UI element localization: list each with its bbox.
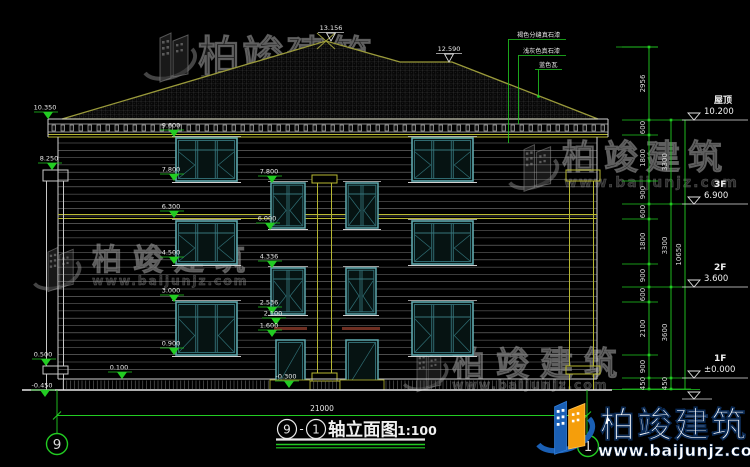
dim-value: 1800 xyxy=(639,149,647,167)
floor-value: 3.600 xyxy=(704,274,728,284)
dentil xyxy=(583,125,587,131)
dim-value: 600 xyxy=(639,288,647,301)
annotation-blue-tile: 蓝色瓦 xyxy=(535,61,562,98)
dim-node xyxy=(648,286,651,289)
dentil xyxy=(421,125,425,131)
title-scale: 1:100 xyxy=(397,423,437,438)
floor-triangle xyxy=(688,392,700,399)
elevation-label-text: 0.900 xyxy=(162,340,181,348)
elevation-label: 7.800 xyxy=(258,168,282,184)
dentil xyxy=(556,125,560,131)
dentil xyxy=(331,125,335,131)
dim-value: 2100 xyxy=(639,320,647,338)
annotation-text: 浅灰色真石漆 xyxy=(523,47,560,55)
dentil xyxy=(340,125,344,131)
dim-node xyxy=(648,119,651,122)
dentil xyxy=(124,125,128,131)
dentil xyxy=(538,125,542,131)
dentil xyxy=(502,125,506,131)
elevation-label-triangle xyxy=(169,295,179,302)
elevation-label-text: 0.100 xyxy=(110,364,129,372)
dentil xyxy=(295,125,299,131)
dentil xyxy=(466,125,470,131)
dim-value: 3300 xyxy=(661,153,669,171)
title-axis-end: 1 xyxy=(312,423,320,437)
dim-node xyxy=(648,354,651,357)
dentil xyxy=(97,125,101,131)
floor-name: 屋顶 xyxy=(714,95,732,106)
dentil xyxy=(52,125,56,131)
dim-node xyxy=(648,218,651,221)
dim-value: 2956 xyxy=(639,74,647,92)
dentil xyxy=(286,125,290,131)
window-frame xyxy=(176,302,237,355)
elevation-label-text: 3.000 xyxy=(162,287,181,295)
floor-value: 10.200 xyxy=(704,107,734,117)
dentil xyxy=(205,125,209,131)
window-frame xyxy=(176,138,237,181)
dentil xyxy=(349,125,353,131)
width-dim-value: 21000 xyxy=(310,404,334,413)
elevation-label-text: -0.450 xyxy=(32,382,53,390)
dim-node xyxy=(670,286,673,289)
dentil xyxy=(259,125,263,131)
elevation-label: 4.336 xyxy=(258,253,282,269)
window-narrow xyxy=(343,182,381,230)
elevation-label-text: 2.100 xyxy=(264,310,283,318)
watermark-brand-text: 柏竣建筑 xyxy=(600,405,748,446)
elevation-label-triangle xyxy=(40,390,50,397)
annotation-text: 褐色分缝真石漆 xyxy=(517,31,560,39)
window-frame xyxy=(412,221,473,264)
dentil xyxy=(448,125,452,131)
dentil xyxy=(547,125,551,131)
title-separator: - xyxy=(299,422,303,436)
window-large xyxy=(172,220,241,266)
dentil xyxy=(88,125,92,131)
dim-node xyxy=(670,388,673,391)
dentil xyxy=(439,125,443,131)
elevation-label-text: -0.300 xyxy=(276,373,297,381)
dim-node xyxy=(648,203,651,206)
dim-value: 900 xyxy=(639,269,647,282)
window-frame xyxy=(346,183,378,228)
floor-triangle xyxy=(688,371,700,378)
dim-value: 3600 xyxy=(661,324,669,342)
cad-elevation-sheet: 柏竣建筑 www.baijunjz.com 柏竣建筑 www.baijunjz.… xyxy=(0,0,750,467)
dim-node xyxy=(670,119,673,122)
dentil xyxy=(493,125,497,131)
roof-level-mark: 12.590 xyxy=(436,45,462,62)
window-large xyxy=(408,301,477,357)
elevation-label-triangle xyxy=(169,130,179,137)
dentil xyxy=(592,125,596,131)
watermark-url-text: www.baijunjz.com xyxy=(564,175,739,191)
dentil xyxy=(520,125,524,131)
dentil xyxy=(232,125,236,131)
dentil xyxy=(385,125,389,131)
floor-name: 2F xyxy=(714,263,726,273)
grid-bubble-9: 9 xyxy=(47,434,68,455)
elevation-label-text: 1.600 xyxy=(260,322,279,330)
elevation-label-text: 7.800 xyxy=(260,168,279,176)
elevation-label-triangle xyxy=(43,112,53,119)
floor-triangle xyxy=(688,113,700,120)
annotation-text: 蓝色瓦 xyxy=(539,61,558,69)
window-large xyxy=(408,220,477,266)
floor-marker: 屋顶10.200 xyxy=(682,95,748,120)
elevation-label-text: 2.536 xyxy=(260,299,279,307)
ground-marker xyxy=(682,392,712,399)
dentil xyxy=(106,125,110,131)
door-lintel xyxy=(342,327,380,330)
window-large xyxy=(172,137,241,183)
dentil xyxy=(250,125,254,131)
dentil xyxy=(484,125,488,131)
dim-node xyxy=(648,180,651,183)
elevation-label: 0.100 xyxy=(108,364,132,380)
floor-triangle xyxy=(688,280,700,287)
elevation-label-text: 6.300 xyxy=(162,203,181,211)
dentil xyxy=(430,125,434,131)
elevation-label-text: 8.250 xyxy=(40,155,59,163)
dentil xyxy=(565,125,569,131)
floor-name: 3F xyxy=(714,180,726,190)
elevation-label: -0.450 xyxy=(31,382,55,398)
roof-level-triangle xyxy=(445,54,454,62)
dim-value: 450 xyxy=(639,377,647,390)
dim-value: 3300 xyxy=(661,237,669,255)
elevation-label: 10.350 xyxy=(34,104,58,120)
floor-triangle xyxy=(688,197,700,204)
watermark-bottom-right-color: 柏竣建筑 www.baijunjz.com xyxy=(538,401,750,460)
leader-dot xyxy=(537,95,540,98)
width-dimension: 21000 xyxy=(53,390,591,435)
elevation-label-triangle xyxy=(41,359,51,366)
roof-outline xyxy=(62,41,598,119)
elevation-label-text: 0.500 xyxy=(34,351,53,359)
floor-marker: 1F±0.000 xyxy=(682,354,748,378)
dim-value: 900 xyxy=(639,360,647,373)
title-name: 轴立面图 xyxy=(328,420,398,441)
window-narrow xyxy=(343,267,379,316)
floor-value: ±0.000 xyxy=(704,365,735,375)
elevation-label-triangle xyxy=(117,372,127,379)
dim-node xyxy=(648,377,651,380)
dim-node xyxy=(670,377,673,380)
dentil xyxy=(529,125,533,131)
elevation-label-text: 4.500 xyxy=(162,249,181,257)
elevation-label-text: 10.350 xyxy=(34,104,57,112)
dentil xyxy=(376,125,380,131)
dim-node xyxy=(670,203,673,206)
dentil xyxy=(394,125,398,131)
door-step xyxy=(340,380,384,390)
title-axis-start: 9 xyxy=(283,423,291,437)
floor-marker: 2F3.600 xyxy=(682,263,748,287)
dentil xyxy=(277,125,281,131)
dentil xyxy=(313,125,317,131)
leader-line xyxy=(535,70,562,96)
roof xyxy=(62,33,598,119)
dentil xyxy=(304,125,308,131)
dim-value: 600 xyxy=(639,205,647,218)
dim-node xyxy=(648,388,651,391)
roof-level-text: 13.156 xyxy=(320,24,343,32)
grid-bubble-label: 9 xyxy=(53,437,62,453)
eave-fascia xyxy=(48,119,608,137)
dentil xyxy=(412,125,416,131)
elevation-label-triangle xyxy=(267,330,277,337)
elevation-label-text: 9.600 xyxy=(162,122,181,130)
dentil xyxy=(241,125,245,131)
right-dimension-chains: 2956600180090060018009006002100900450330… xyxy=(616,46,691,391)
dentil xyxy=(79,125,83,131)
watermark-url-text: www.baijunjz.com xyxy=(598,441,750,460)
dentil xyxy=(457,125,461,131)
roof-level-text: 12.590 xyxy=(438,45,461,53)
window-large xyxy=(408,137,477,183)
title-block: 9 - 1 轴立面图 1:100 xyxy=(276,420,437,448)
elevation-label-text: 4.336 xyxy=(260,253,279,261)
dentil xyxy=(367,125,371,131)
dentil xyxy=(574,125,578,131)
dentil xyxy=(142,125,146,131)
dentil xyxy=(358,125,362,131)
dentil xyxy=(475,125,479,131)
dentil xyxy=(403,125,407,131)
dentil xyxy=(511,125,515,131)
dim-value: 450 xyxy=(661,377,669,390)
window-frame xyxy=(176,221,237,264)
dim-node xyxy=(648,134,651,137)
dim-value: 900 xyxy=(639,186,647,199)
dim-node xyxy=(648,263,651,266)
dim-value: 1800 xyxy=(639,233,647,251)
elevation-label-text: 7.800 xyxy=(162,166,181,174)
dentil xyxy=(151,125,155,131)
dim-value: 600 xyxy=(639,121,647,134)
dentil xyxy=(70,125,74,131)
dentil xyxy=(214,125,218,131)
porch-column xyxy=(309,175,340,390)
dim-value: 10650 xyxy=(675,243,683,265)
dentil xyxy=(196,125,200,131)
dentil xyxy=(268,125,272,131)
dentil xyxy=(115,125,119,131)
elevation-label-triangle xyxy=(47,163,57,170)
floor-value: 6.900 xyxy=(704,191,728,201)
dentil xyxy=(223,125,227,131)
dentil xyxy=(601,125,605,131)
elevation-label-text: 6.000 xyxy=(258,215,277,223)
dentil-row xyxy=(52,125,605,131)
window-frame xyxy=(346,268,376,314)
window-frame xyxy=(412,302,473,355)
window-frame xyxy=(412,138,473,181)
elevation-drawing: 柏竣建筑 www.baijunjz.com 柏竣建筑 www.baijunjz.… xyxy=(0,0,750,467)
dentil xyxy=(322,125,326,131)
floor-name: 1F xyxy=(714,354,726,364)
elevation-label: 6.300 xyxy=(160,203,184,219)
dentil xyxy=(133,125,137,131)
elevation-label: 0.500 xyxy=(32,351,56,367)
dentil xyxy=(61,125,65,131)
dentil xyxy=(187,125,191,131)
dim-node xyxy=(648,301,651,304)
door-lintel xyxy=(274,327,307,330)
